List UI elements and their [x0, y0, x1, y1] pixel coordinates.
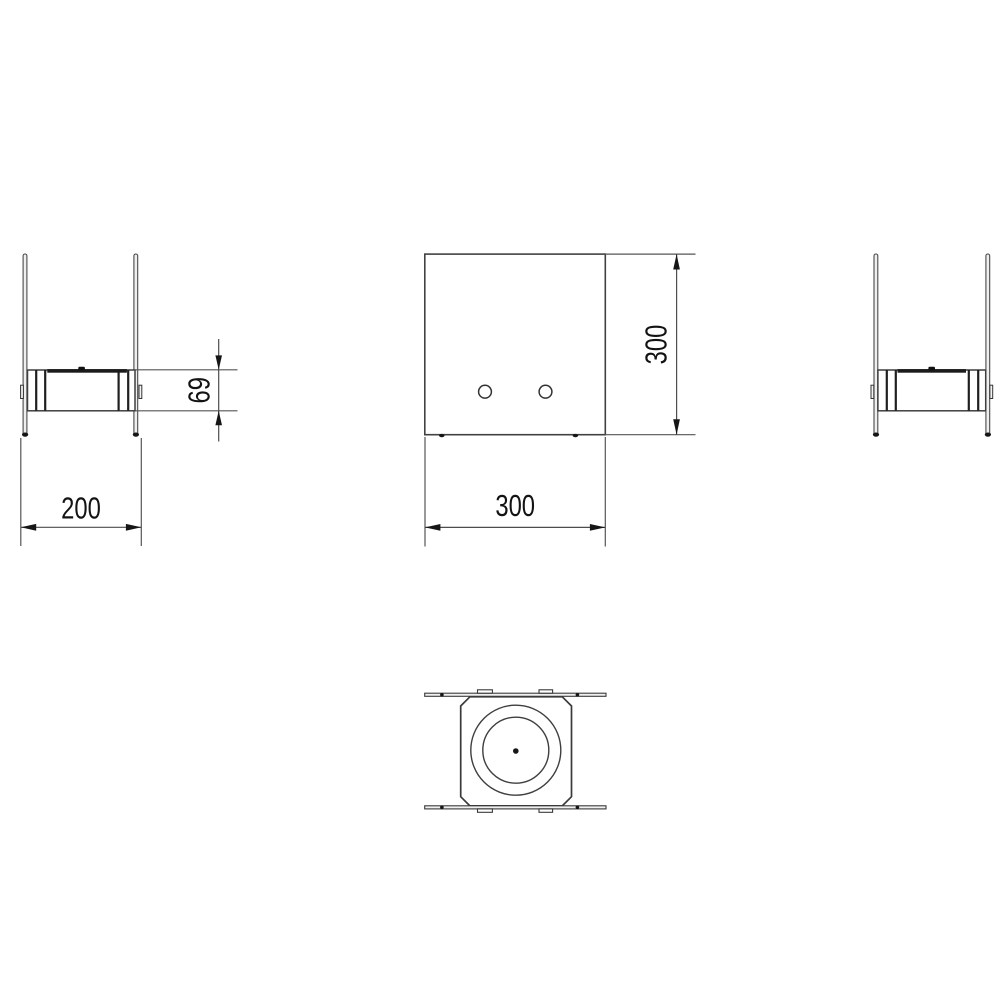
svg-text:300: 300	[495, 488, 535, 523]
svg-text:200: 200	[61, 490, 101, 525]
svg-text:69: 69	[182, 377, 217, 403]
svg-text:300: 300	[639, 325, 674, 365]
